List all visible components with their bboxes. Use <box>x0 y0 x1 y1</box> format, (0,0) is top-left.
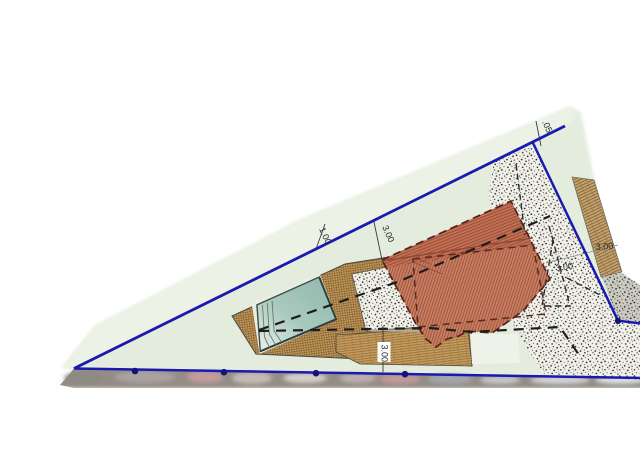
svg-text:3.00: 3.00 <box>380 345 390 363</box>
svg-text:3.00: 3.00 <box>595 241 613 252</box>
